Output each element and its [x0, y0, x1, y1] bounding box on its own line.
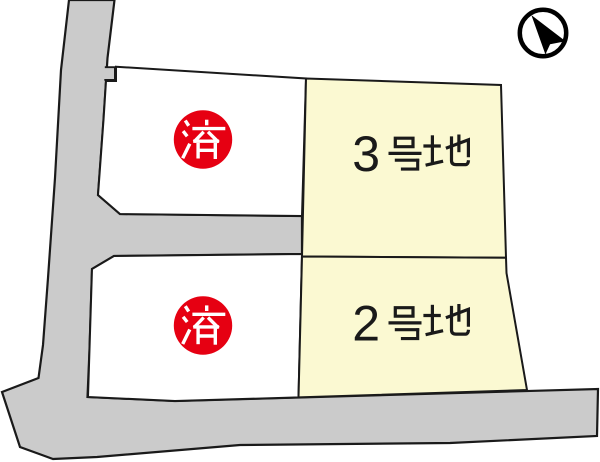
- svg-text:3: 3: [352, 126, 380, 182]
- svg-text:2: 2: [352, 296, 380, 352]
